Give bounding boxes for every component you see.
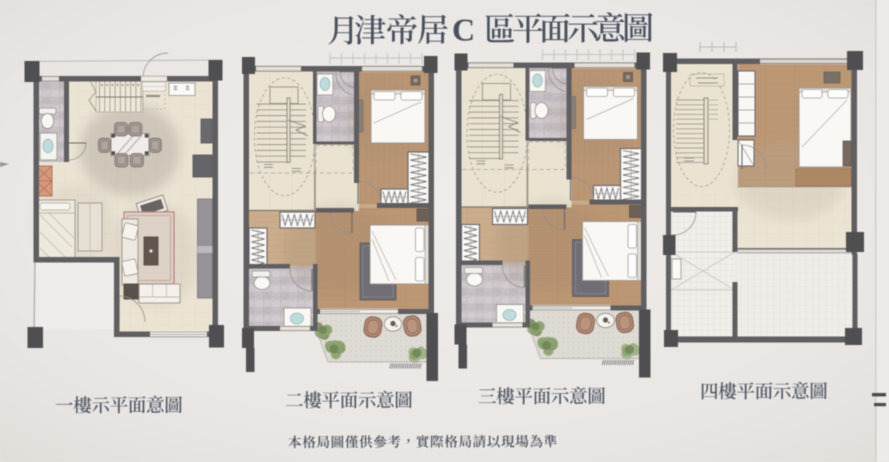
svg-text:C: C <box>452 11 475 47</box>
